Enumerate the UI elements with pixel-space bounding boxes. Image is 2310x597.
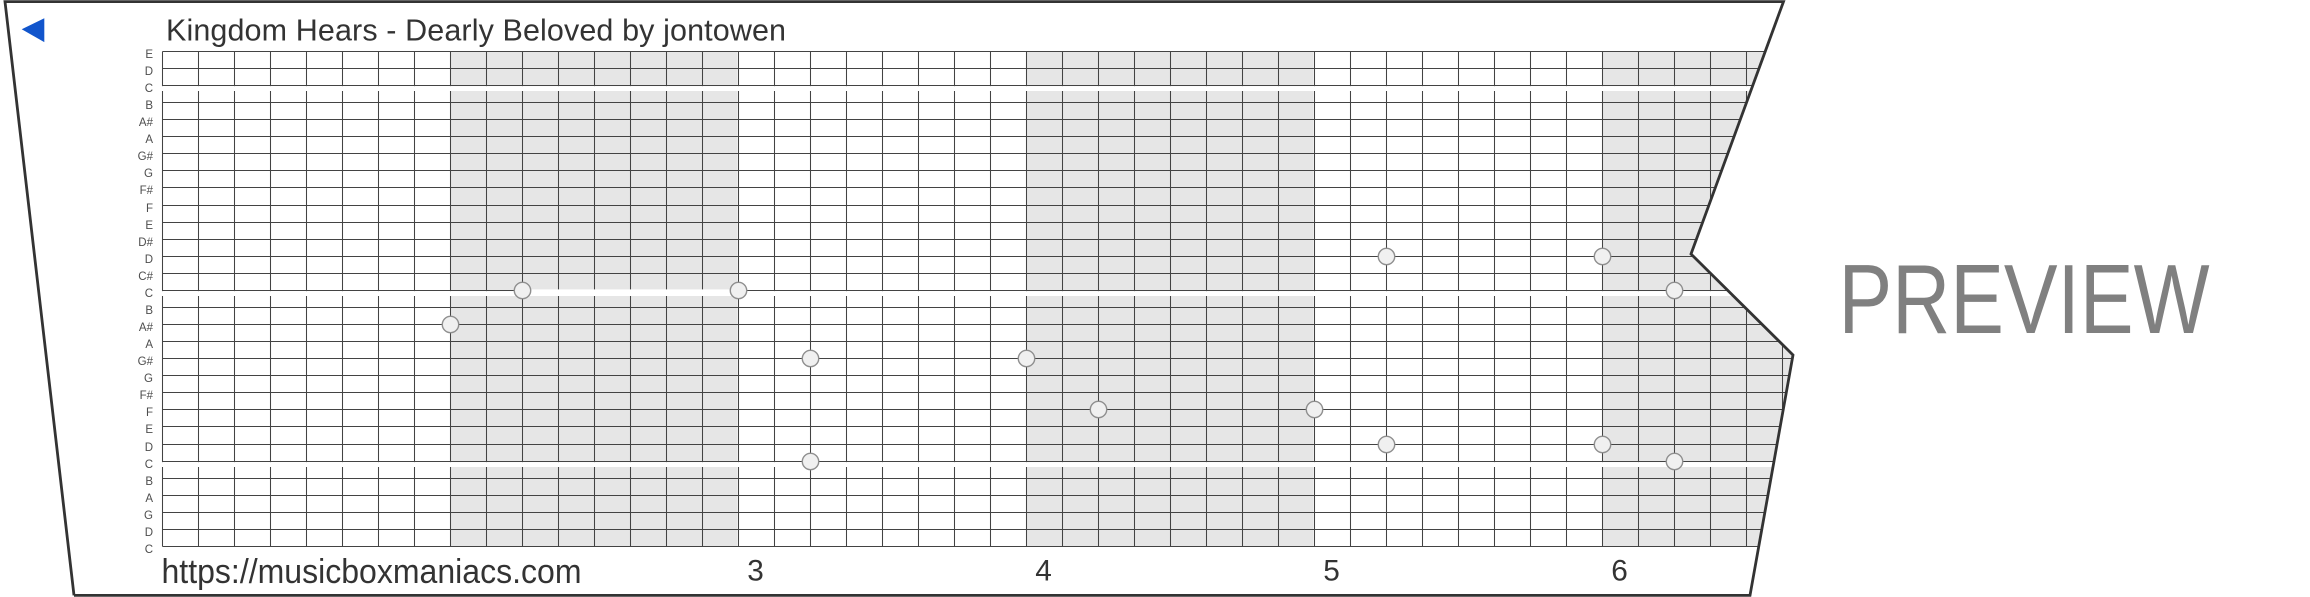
svg-text:G#: G# — [138, 151, 154, 163]
svg-text:G: G — [144, 373, 153, 385]
svg-text:G: G — [144, 510, 153, 522]
svg-text:E: E — [145, 424, 153, 436]
svg-text:B: B — [145, 476, 153, 488]
svg-text:https://musicboxmaniacs.com: https://musicboxmaniacs.com — [162, 553, 582, 591]
svg-text:D: D — [145, 442, 153, 454]
svg-text:C: C — [145, 288, 153, 300]
svg-text:C#: C# — [138, 271, 153, 283]
svg-text:A: A — [145, 339, 153, 351]
svg-text:E: E — [145, 220, 153, 232]
svg-text:4: 4 — [1035, 555, 1052, 588]
svg-text:6: 6 — [1611, 555, 1628, 588]
svg-text:F#: F# — [140, 185, 154, 197]
svg-text:F: F — [146, 203, 153, 215]
svg-text:D: D — [145, 527, 153, 539]
svg-text:D: D — [145, 254, 153, 266]
svg-text:E: E — [145, 49, 153, 61]
svg-text:F: F — [146, 407, 153, 419]
svg-text:C: C — [145, 544, 153, 556]
svg-text:PREVIEW: PREVIEW — [1839, 244, 2210, 354]
svg-text:A: A — [145, 134, 153, 146]
svg-text:F#: F# — [140, 390, 154, 402]
svg-text:D#: D# — [138, 237, 153, 249]
svg-text:G: G — [144, 168, 153, 180]
svg-text:D: D — [145, 66, 153, 78]
svg-text:B: B — [145, 305, 153, 317]
svg-text:Kingdom Hears - Dearly Beloved: Kingdom Hears - Dearly Beloved by jontow… — [166, 14, 786, 48]
svg-text:A#: A# — [139, 322, 154, 334]
svg-text:A: A — [145, 493, 153, 505]
svg-text:C: C — [145, 83, 153, 95]
svg-text:A#: A# — [139, 117, 154, 129]
svg-text:3: 3 — [747, 555, 764, 588]
svg-text:B: B — [145, 100, 153, 112]
svg-text:C: C — [145, 459, 153, 471]
svg-text:G#: G# — [138, 356, 154, 368]
svg-text:5: 5 — [1323, 555, 1340, 588]
